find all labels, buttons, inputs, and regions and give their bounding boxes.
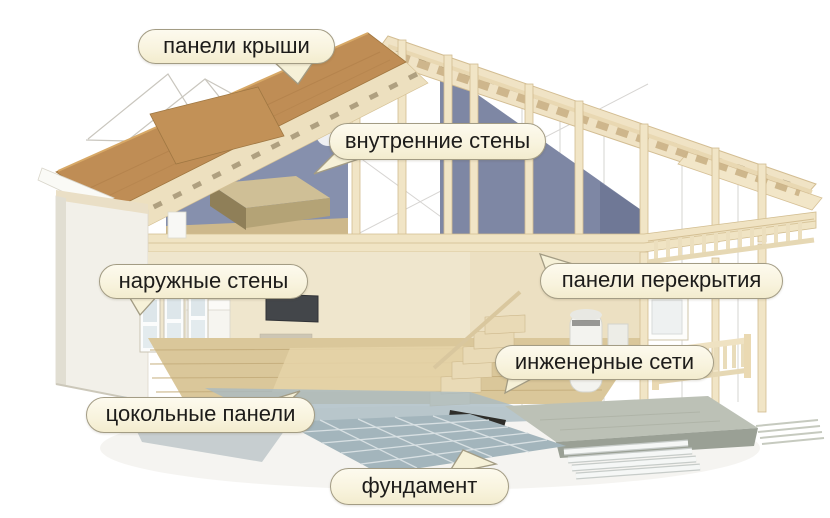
house-cutaway-illustration <box>0 0 830 518</box>
right-window <box>646 294 688 340</box>
diagram-canvas: панели крыши внутренние стены наружные с… <box>0 0 830 518</box>
callout-inner-walls: внутренние стены <box>329 123 546 160</box>
callout-roof-panels: панели крыши <box>138 29 335 64</box>
radiator-panel <box>168 212 186 238</box>
callout-floor-panels: панели перекрытия <box>540 263 783 299</box>
callout-utilities-label: инженерные сети <box>515 349 694 375</box>
callout-plinth-panels: цокольные панели <box>86 397 315 433</box>
right-grid-patch <box>756 420 824 444</box>
callout-outer-walls-label: наружные стены <box>119 268 289 294</box>
callout-outer-walls: наружные стены <box>99 264 308 299</box>
callout-plinth-panels-label: цокольные панели <box>106 401 296 427</box>
callout-inner-walls-label: внутренние стены <box>345 128 530 154</box>
callout-foundation-label: фундамент <box>362 473 478 499</box>
callout-foundation: фундамент <box>330 468 509 505</box>
callout-roof-panels-label: панели крыши <box>163 33 310 59</box>
callout-floor-panels-label: панели перекрытия <box>562 267 762 293</box>
callout-utilities: инженерные сети <box>495 345 714 380</box>
